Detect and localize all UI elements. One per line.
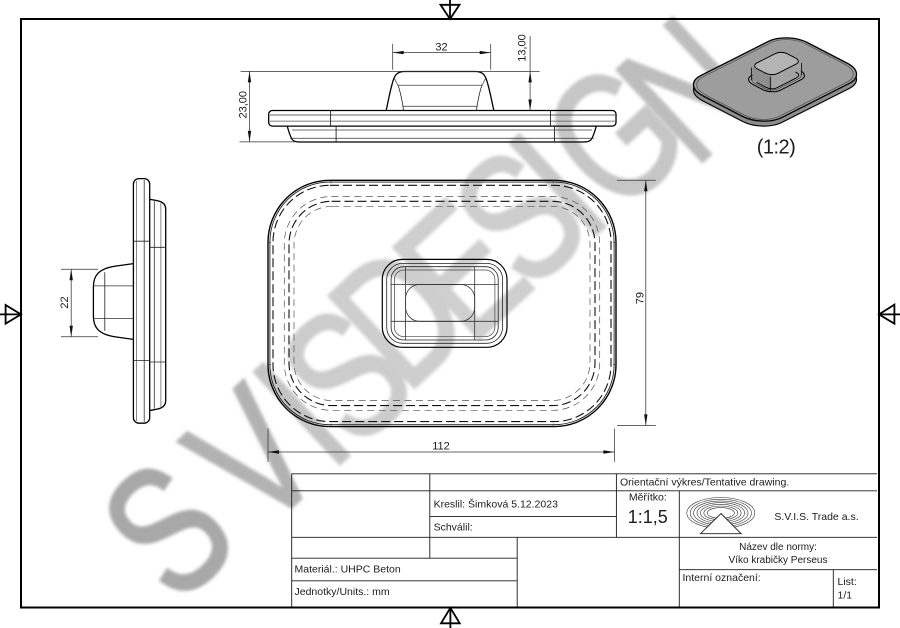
svg-text:1:1,5: 1:1,5	[628, 507, 668, 527]
svg-text:Kreslil: Šimková 5.12.2023: Kreslil: Šimková 5.12.2023	[434, 497, 558, 510]
svg-text:1/1: 1/1	[838, 589, 853, 601]
svg-text:23,00: 23,00	[237, 91, 249, 119]
svg-text:Interní označení:: Interní označení:	[683, 572, 761, 584]
svg-text:79: 79	[635, 292, 647, 304]
svg-text:S.V.I.S. Trade a.s.: S.V.I.S. Trade a.s.	[774, 511, 858, 523]
svg-text:Měřítko:: Měřítko:	[629, 492, 667, 504]
svg-text:List:: List:	[838, 576, 857, 588]
svg-text:Jednotky/Units.: mm: Jednotky/Units.: mm	[295, 586, 390, 598]
svg-text:32: 32	[435, 41, 447, 53]
svg-text:22: 22	[59, 296, 71, 308]
svg-text:Materiál.: UHPC Beton: Materiál.: UHPC Beton	[295, 563, 401, 575]
svg-text:Víko krabičky Perseus: Víko krabičky Perseus	[729, 555, 828, 566]
svg-text:112: 112	[432, 440, 450, 452]
svg-text:Název dle normy:: Název dle normy:	[739, 542, 817, 553]
svg-text:(1:2): (1:2)	[757, 137, 796, 159]
svg-text:13,00: 13,00	[517, 34, 529, 62]
svg-text:Schválil:: Schválil:	[434, 521, 473, 533]
svg-text:Orientační výkres/Tentative dr: Orientační výkres/Tentative drawing.	[620, 476, 789, 488]
